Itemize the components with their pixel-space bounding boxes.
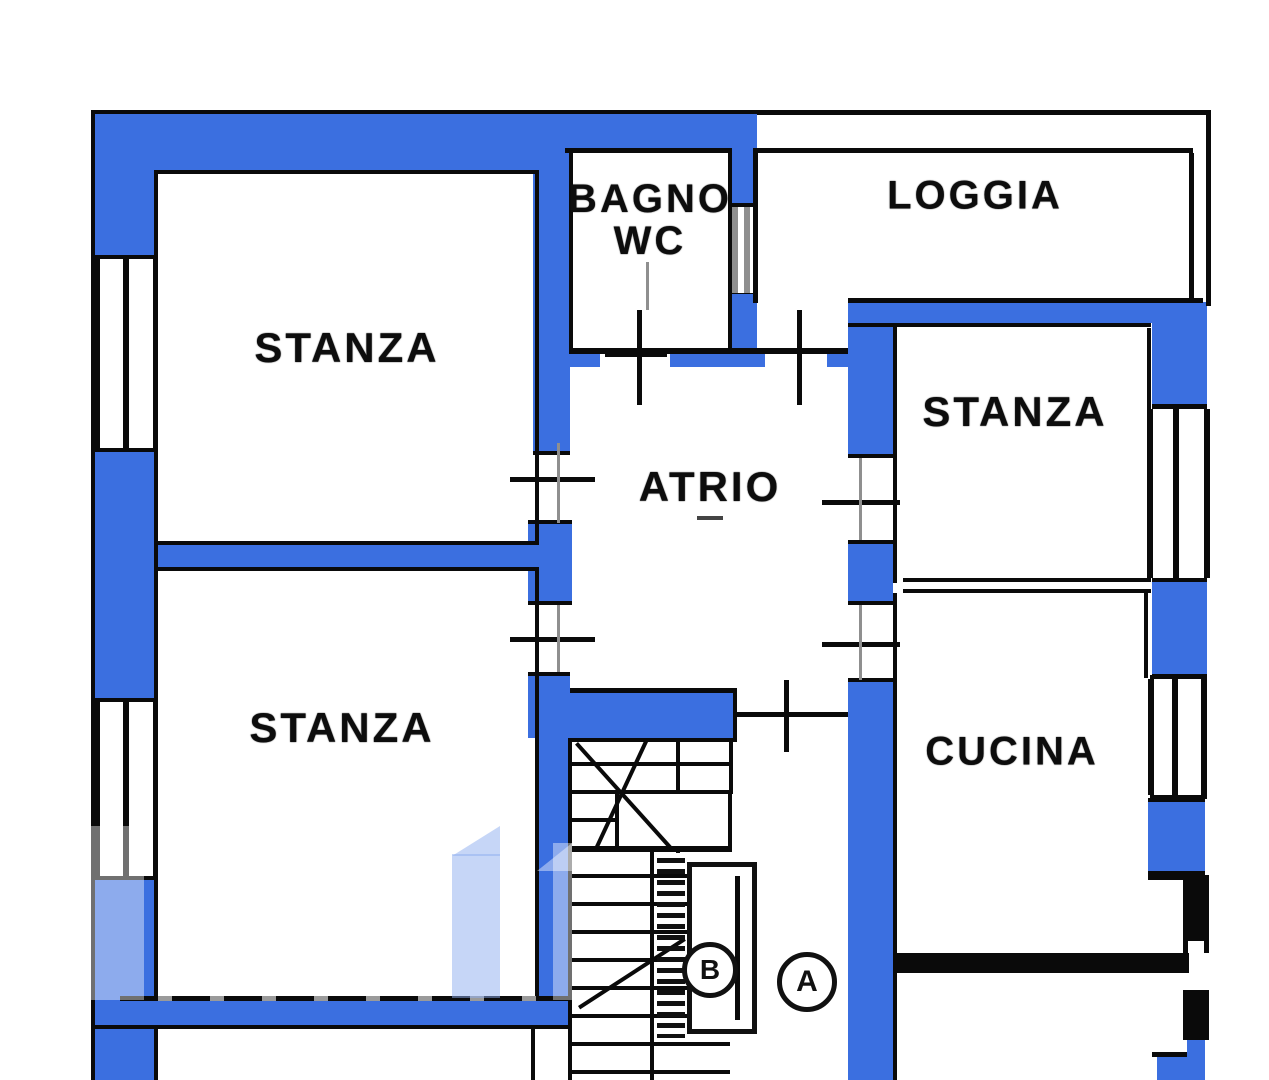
watermark-patch xyxy=(452,854,500,998)
outline-line xyxy=(1183,1035,1209,1040)
outline-line xyxy=(737,712,848,717)
window-line xyxy=(1201,679,1207,795)
wall-segment xyxy=(848,302,1203,323)
watermark-patch xyxy=(452,826,500,856)
room-label-bagno-line2: WC xyxy=(614,219,687,263)
door-opening xyxy=(765,354,827,367)
outline-line xyxy=(1147,328,1151,409)
wall-segment xyxy=(158,545,535,567)
unit-marker-b-label: B xyxy=(700,954,720,986)
room-label-atrio: ATRIO xyxy=(639,463,782,511)
wall-segment xyxy=(570,693,733,738)
outline-line xyxy=(1152,1052,1187,1057)
outline-line xyxy=(95,110,757,114)
outline-line xyxy=(95,448,158,452)
outline-line xyxy=(755,148,1193,153)
room-label-loggia: LOGGIA xyxy=(887,174,1063,219)
outline-line xyxy=(95,1025,572,1029)
wall-segment xyxy=(1152,578,1207,678)
outline-line xyxy=(154,1029,158,1080)
outline-line xyxy=(531,1029,535,1080)
wall-segment xyxy=(95,113,158,257)
outline-line xyxy=(893,973,897,1080)
outline-line xyxy=(1150,795,1207,799)
outline-line xyxy=(893,593,897,955)
outline-line xyxy=(158,567,535,571)
wall-segment xyxy=(95,113,535,170)
outline-line xyxy=(95,698,158,702)
elevator-inner-line xyxy=(735,876,740,1020)
wall-segment xyxy=(95,1000,572,1025)
door-tick xyxy=(510,637,595,642)
door-tick xyxy=(784,680,789,752)
opening-line xyxy=(744,207,750,293)
outline-line xyxy=(893,323,897,583)
floor-plan: STANZA STANZA STANZA BAGNO WC LOGGIA ATR… xyxy=(0,0,1269,1080)
outline-line xyxy=(535,567,539,997)
window-line xyxy=(1172,679,1178,795)
outline-line xyxy=(1144,593,1148,678)
stair-rail xyxy=(650,852,654,1080)
window-line xyxy=(1148,679,1154,795)
outline-line xyxy=(1148,875,1205,880)
landing-box xyxy=(615,790,732,850)
outline-line xyxy=(733,688,737,742)
section-hatch xyxy=(657,858,685,1038)
wall-segment xyxy=(95,452,158,700)
outline-line xyxy=(95,255,158,259)
wall-segment xyxy=(1187,1040,1205,1080)
wall-segment xyxy=(1152,302,1207,408)
room-label-stanza-top-left: STANZA xyxy=(254,324,439,372)
outline-line xyxy=(120,996,572,1001)
wall-segment xyxy=(1157,1057,1187,1080)
room-label-bagno-wc: BAGNO WC xyxy=(568,178,732,262)
door-opening xyxy=(1188,941,1204,953)
outline-line xyxy=(535,170,539,545)
window-line xyxy=(1147,409,1153,578)
window-line xyxy=(123,259,129,448)
room-label-cucina: CUCINA xyxy=(925,730,1099,775)
door-tick xyxy=(510,477,595,482)
label-underline-mark xyxy=(697,516,723,520)
outline-line xyxy=(158,170,535,174)
outline-line xyxy=(605,348,667,357)
window-line xyxy=(1204,409,1210,578)
wall-segment xyxy=(1148,798,1205,875)
opening-line xyxy=(646,262,649,310)
wall-segment xyxy=(848,323,893,458)
wall-segment xyxy=(848,540,893,605)
opening-line xyxy=(557,605,560,672)
window-line xyxy=(1173,409,1179,578)
opening-line xyxy=(859,605,862,680)
room-label-stanza-bottom-left: STANZA xyxy=(249,704,434,752)
room-label-stanza-right: STANZA xyxy=(922,388,1107,436)
unit-marker-a-label: A xyxy=(796,965,818,999)
outline-line xyxy=(1150,675,1207,679)
outline-line xyxy=(753,148,758,303)
outline-line xyxy=(570,688,733,693)
wall-segment xyxy=(535,113,757,150)
outline-line xyxy=(903,578,1151,582)
opening-line xyxy=(859,458,862,540)
outline-line xyxy=(757,110,1211,115)
outline-line xyxy=(1152,405,1207,409)
unit-marker-a: A xyxy=(777,952,837,1012)
outline-line xyxy=(848,298,1203,303)
outline-line xyxy=(903,589,1151,593)
wall-segment xyxy=(1183,990,1209,1040)
wall-segment xyxy=(848,678,893,1080)
door-tick xyxy=(797,310,802,405)
wall-segment xyxy=(893,953,1189,973)
outline-line xyxy=(729,738,733,794)
room-label-bagno-line1: BAGNO xyxy=(568,177,732,221)
outline-line xyxy=(158,541,535,545)
opening-line xyxy=(557,443,560,523)
outline-line xyxy=(1206,110,1211,306)
opening-line xyxy=(732,207,738,293)
watermark-patch xyxy=(84,826,144,1000)
window-line xyxy=(95,259,100,448)
unit-marker-b: B xyxy=(682,942,738,998)
outline-line xyxy=(565,148,732,153)
outline-line xyxy=(1189,153,1194,303)
door-tick xyxy=(637,310,642,405)
outline-line xyxy=(893,323,1151,327)
